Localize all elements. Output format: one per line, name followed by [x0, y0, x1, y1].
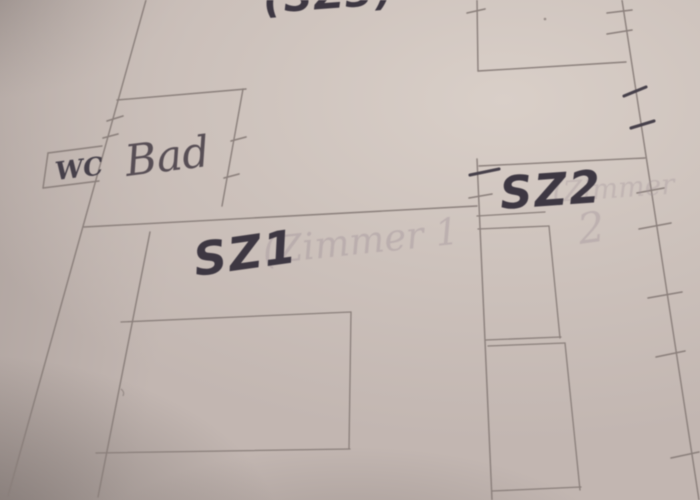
bed-sz1-right — [349, 312, 351, 449]
room-label-wc: WC — [54, 151, 105, 186]
photo-of-floor-plan: (Zimmer 1 (Zimmer 2 (SZ3) WC Bad SZ1 SZ2 — [0, 0, 700, 500]
bed-sz2-top — [488, 343, 565, 346]
tick-mark — [639, 223, 671, 229]
cabinet-sz2-top — [478, 226, 549, 229]
bed-sz1-top — [121, 312, 351, 322]
tick-mark — [467, 9, 485, 13]
wall-outer-right — [622, 0, 699, 500]
tick-mark — [648, 292, 682, 298]
wall-sz1-left-interior — [98, 232, 150, 497]
tick-mark — [231, 137, 246, 141]
floor-plan-sketch: (Zimmer 1 (Zimmer 2 (SZ3) WC Bad SZ1 SZ2 — [0, 0, 700, 500]
pencil-speck — [544, 18, 547, 21]
tick-mark — [107, 116, 123, 121]
ghost-labels: (Zimmer 1 (Zimmer 2 — [260, 167, 677, 273]
tick-mark — [607, 30, 632, 34]
cabinet-sz2-bottom — [486, 337, 561, 340]
cabinet-sz2-right — [549, 226, 560, 338]
tick-mark — [224, 174, 239, 178]
bed-sz2-right — [565, 343, 580, 490]
wall-sz3-bottom — [478, 62, 626, 71]
room-label-sz1: SZ1 — [190, 219, 301, 287]
wall-outer-left — [8, 0, 146, 496]
bed-sz1-bottom — [96, 449, 350, 453]
pencil-squiggle — [121, 389, 124, 396]
tick-mark-bold — [470, 169, 499, 175]
tick-mark — [103, 134, 118, 138]
bed-sz2-bottom — [492, 487, 581, 491]
tick-mark — [656, 351, 685, 357]
room-label-sz3: (SZ3) — [261, 0, 396, 23]
wall-sz2-left — [477, 159, 492, 500]
paper-specks — [121, 18, 546, 396]
tick-mark — [469, 194, 492, 198]
room-label-bad: Bad — [121, 127, 212, 187]
wall-bad-top — [117, 89, 246, 100]
room-label-sz2: SZ2 — [498, 160, 604, 220]
wall-wc-left — [43, 153, 48, 188]
tick-mark — [671, 452, 699, 458]
tick-mark — [607, 10, 632, 13]
wall-bad-right — [222, 89, 243, 206]
tick-mark-bold — [631, 121, 654, 128]
